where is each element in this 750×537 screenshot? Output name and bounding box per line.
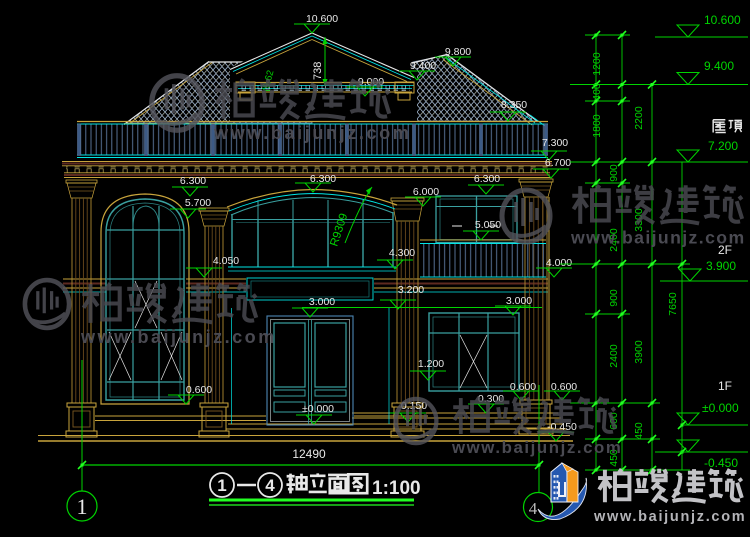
svg-text:2200: 2200: [633, 106, 645, 130]
svg-text:6.300: 6.300: [180, 175, 206, 187]
svg-text:4.300: 4.300: [389, 247, 415, 259]
svg-text:5.700: 5.700: [185, 197, 211, 209]
svg-text:10.600: 10.600: [704, 13, 741, 27]
svg-text:1200: 1200: [591, 52, 603, 76]
svg-text:900: 900: [608, 164, 620, 182]
svg-text:1: 1: [77, 494, 88, 519]
svg-text:4.050: 4.050: [213, 255, 239, 267]
svg-text:2400: 2400: [608, 344, 620, 368]
svg-text:5.050: 5.050: [475, 219, 501, 231]
svg-text:3.000: 3.000: [506, 295, 532, 307]
svg-text:1:100: 1:100: [372, 478, 421, 499]
svg-text:7.300: 7.300: [542, 137, 568, 149]
svg-text:-0.450: -0.450: [704, 456, 738, 470]
svg-text:±0.000: ±0.000: [302, 403, 334, 415]
svg-text:1.200: 1.200: [418, 358, 444, 370]
svg-text:7650: 7650: [667, 292, 679, 316]
svg-text:3.900: 3.900: [706, 259, 736, 273]
svg-text:4: 4: [265, 476, 275, 495]
svg-text:1: 1: [217, 476, 226, 495]
svg-text:4: 4: [529, 499, 538, 518]
svg-text:738: 738: [312, 62, 324, 80]
svg-text:900: 900: [608, 289, 620, 307]
svg-text:6.000: 6.000: [413, 186, 439, 198]
svg-text:6.700: 6.700: [545, 157, 571, 169]
svg-text:8.350: 8.350: [501, 99, 527, 111]
svg-text:400: 400: [591, 83, 603, 101]
svg-text:9.400: 9.400: [704, 59, 734, 73]
svg-text:www.baijunjz.com: www.baijunjz.com: [593, 509, 746, 525]
svg-text:www.baijunjz.com: www.baijunjz.com: [570, 228, 746, 248]
svg-text:±0.000: ±0.000: [702, 401, 739, 415]
svg-text:www.baijunjz.com: www.baijunjz.com: [213, 123, 411, 143]
svg-text:0.600: 0.600: [186, 384, 212, 396]
svg-text:450: 450: [633, 422, 645, 440]
svg-text:3900: 3900: [633, 340, 645, 364]
svg-text:1800: 1800: [591, 114, 603, 138]
svg-text:4.000: 4.000: [546, 257, 572, 269]
svg-text:1F: 1F: [718, 379, 732, 393]
svg-text:3.000: 3.000: [309, 296, 335, 308]
svg-text:10.600: 10.600: [306, 13, 338, 25]
svg-text:6.300: 6.300: [474, 173, 500, 185]
svg-text:9.400: 9.400: [410, 60, 436, 72]
svg-text:7.200: 7.200: [708, 139, 738, 153]
svg-text:9.800: 9.800: [445, 46, 471, 58]
svg-text:12490: 12490: [292, 447, 326, 461]
svg-text:www.baijunjz.com: www.baijunjz.com: [451, 438, 622, 457]
svg-text:www.baijunjz.com: www.baijunjz.com: [80, 327, 277, 347]
svg-text:3.200: 3.200: [398, 284, 424, 296]
